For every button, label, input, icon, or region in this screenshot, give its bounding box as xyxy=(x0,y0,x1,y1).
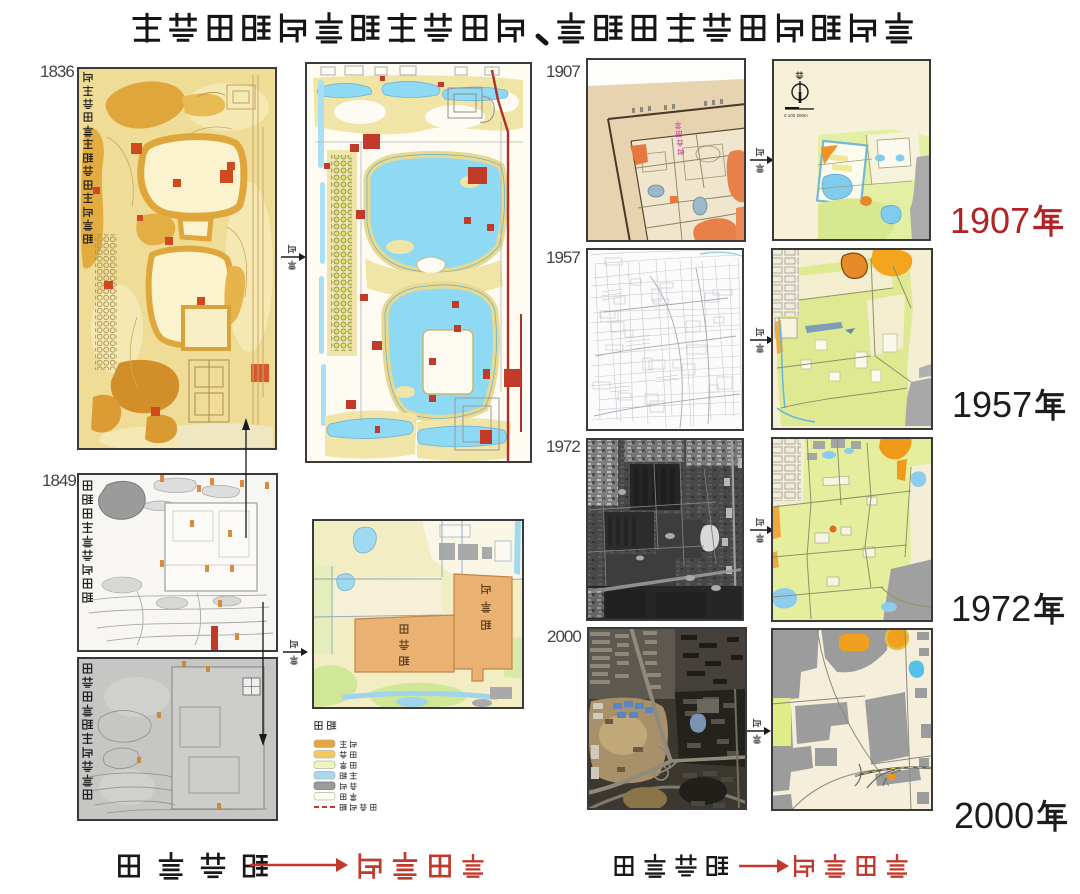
svg-text:0 100 200m: 0 100 200m xyxy=(784,113,808,118)
